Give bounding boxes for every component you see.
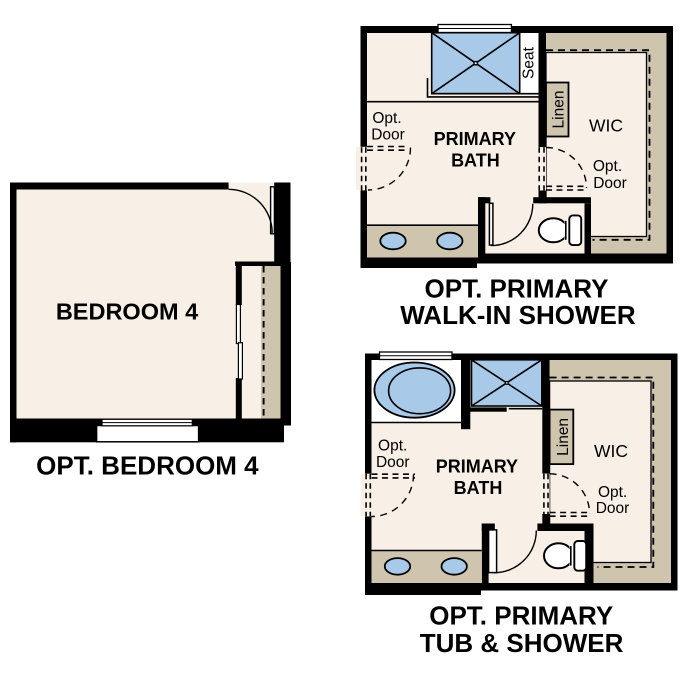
svg-text:WALK-IN SHOWER: WALK-IN SHOWER	[400, 300, 636, 330]
svg-text:WIC: WIC	[594, 441, 628, 461]
svg-text:Door: Door	[593, 175, 627, 192]
svg-text:BATH: BATH	[451, 151, 500, 171]
svg-text:Opt.: Opt.	[378, 437, 407, 454]
svg-text:Door: Door	[376, 454, 410, 471]
svg-text:Door: Door	[371, 127, 405, 144]
svg-text:Opt.: Opt.	[593, 158, 622, 175]
svg-text:Opt.: Opt.	[372, 110, 401, 127]
svg-text:TUB & SHOWER: TUB & SHOWER	[420, 628, 624, 658]
svg-text:OPT. BEDROOM 4: OPT. BEDROOM 4	[36, 451, 259, 481]
svg-text:BATH: BATH	[454, 478, 503, 498]
svg-text:BEDROOM 4: BEDROOM 4	[56, 298, 198, 324]
svg-text:OPT. PRIMARY: OPT. PRIMARY	[429, 601, 613, 631]
svg-text:Door: Door	[596, 500, 630, 517]
svg-text:Seat: Seat	[521, 46, 538, 79]
svg-text:Linen: Linen	[555, 418, 572, 456]
svg-text:Opt.: Opt.	[598, 484, 627, 501]
svg-text:OPT. PRIMARY: OPT. PRIMARY	[425, 274, 609, 304]
svg-text:Linen: Linen	[550, 91, 567, 129]
svg-text:WIC: WIC	[589, 115, 623, 135]
svg-text:PRIMARY: PRIMARY	[434, 129, 516, 149]
svg-text:PRIMARY: PRIMARY	[436, 457, 518, 477]
